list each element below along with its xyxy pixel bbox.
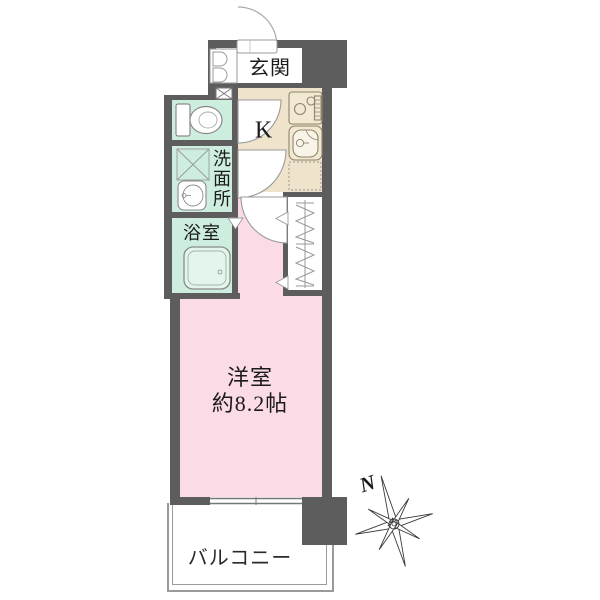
washroom-label: 洗面所 (208, 149, 234, 209)
kitchen-sink-icon (289, 126, 322, 160)
main-room-size: 約8.2帖 (212, 391, 289, 417)
kitchen-label: K (255, 118, 273, 145)
main-room-name: 洋室 (212, 365, 289, 391)
bathtub-icon (184, 247, 230, 289)
balcony-label: バルコニー (188, 542, 293, 571)
shoe-cabinet-icon (210, 49, 237, 83)
balcony-window (210, 497, 302, 505)
entrance-label: 玄関 (249, 52, 291, 81)
compass-rose-icon (342, 465, 444, 577)
washroom-door-icon (238, 150, 286, 198)
stove-icon (289, 92, 322, 124)
closet-hanger-icon (296, 200, 314, 288)
toilet-icon (176, 104, 222, 136)
front-door-icon (237, 7, 277, 53)
refrigerator-icon (289, 162, 321, 190)
bathroom-label: 浴室 (183, 219, 221, 245)
washing-machine-icon (177, 149, 209, 180)
washbasin-icon (178, 181, 206, 210)
main-room-label: 洋室 約8.2帖 (212, 365, 289, 417)
meter-box-icon (216, 88, 232, 99)
floor-plan: 玄関 K 洗面所 浴室 洋室 約8.2帖 バルコニー N (0, 0, 600, 600)
fixture-layer (0, 0, 600, 600)
bathroom-door-icon (228, 218, 243, 229)
